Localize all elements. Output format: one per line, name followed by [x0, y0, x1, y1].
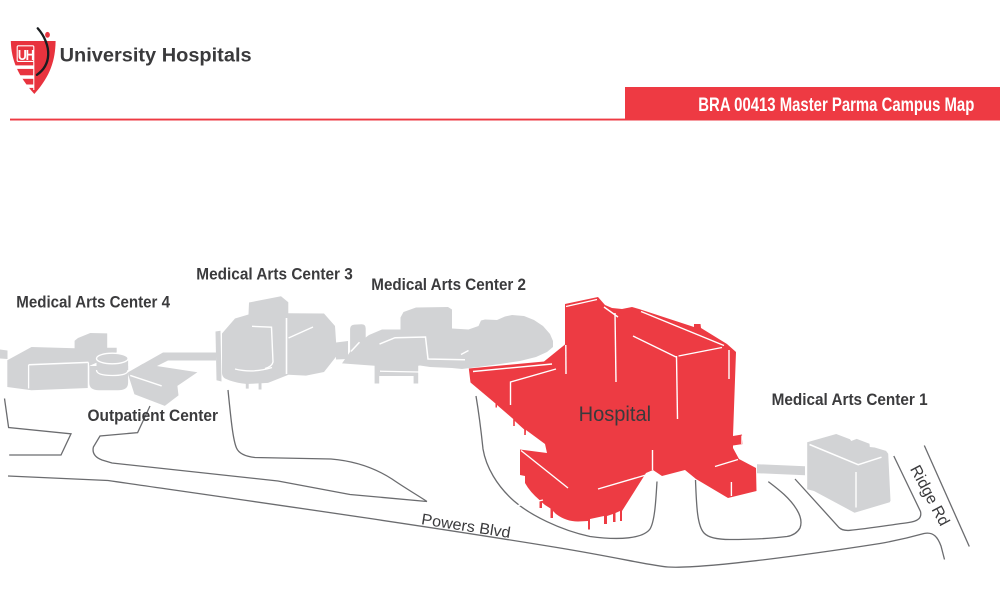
- svg-text:Medical Arts Center 4: Medical Arts Center 4: [16, 293, 170, 311]
- svg-text:Outpatient Center: Outpatient Center: [88, 407, 219, 425]
- svg-text:BRA 00413 Master Parma Campus: BRA 00413 Master Parma Campus Map: [698, 94, 974, 116]
- svg-text:Hospital: Hospital: [579, 402, 652, 426]
- svg-text:University Hospitals: University Hospitals: [60, 45, 252, 66]
- svg-text:UH: UH: [18, 48, 34, 64]
- svg-text:Medical Arts Center 3: Medical Arts Center 3: [196, 266, 352, 284]
- svg-text:Medical Arts Center 2: Medical Arts Center 2: [371, 276, 526, 294]
- svg-text:Medical Arts Center 1: Medical Arts Center 1: [772, 391, 928, 409]
